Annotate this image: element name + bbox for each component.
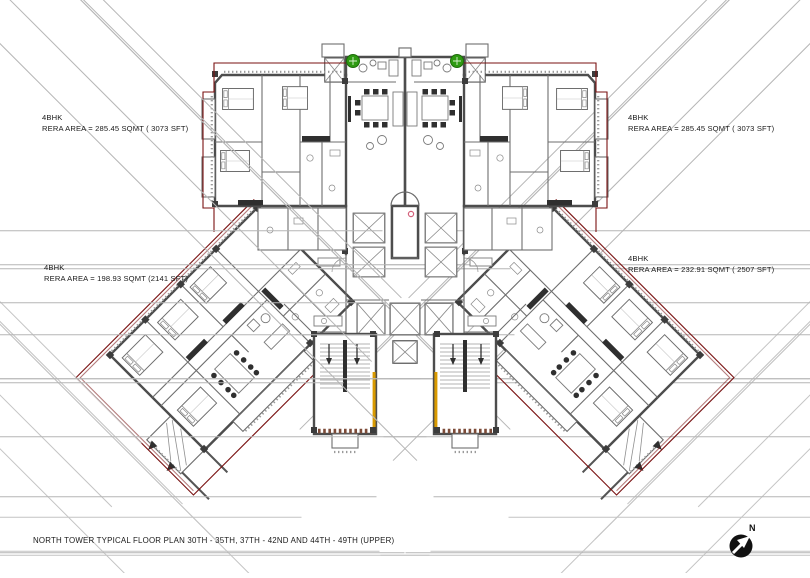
floor-plan-drawing: N (0, 0, 810, 573)
unit-area-text: RERA AREA = 232.91 SQMT ( 2507 SFT) (628, 264, 774, 275)
unit-label-mid-left: 4BHK RERA AREA = 198.93 SQMT (2141 SFT) (44, 262, 188, 284)
unit-area-text: RERA AREA = 198.93 SQMT (2141 SFT) (44, 273, 188, 284)
unit-type-text: 4BHK (44, 262, 188, 273)
plan-title: NORTH TOWER TYPICAL FLOOR PLAN 30TH - 35… (33, 536, 394, 545)
unit-type-text: 4BHK (42, 112, 188, 123)
unit-area-text: RERA AREA = 285.45 SQMT ( 3073 SFT) (628, 123, 774, 134)
unit-area-text: RERA AREA = 285.45 SQMT ( 3073 SFT) (42, 123, 188, 134)
left-half-plan (75, 0, 810, 573)
unit-label-top-right: 4BHK RERA AREA = 285.45 SQMT ( 3073 SFT) (628, 112, 774, 134)
mirrored-right-half-plan (0, 0, 735, 573)
plant-icon (347, 55, 360, 68)
unit-label-top-left: 4BHK RERA AREA = 285.45 SQMT ( 3073 SFT) (42, 112, 188, 134)
unit-label-mid-right: 4BHK RERA AREA = 232.91 SQMT ( 2507 SFT) (628, 253, 774, 275)
floor-plan-page: N 4BHK RERA AREA = 285.45 SQMT ( 3073 SF… (0, 0, 810, 573)
left-wing-unit (75, 0, 810, 573)
compass-north-letter: N (749, 523, 756, 533)
unit-type-text: 4BHK (628, 253, 774, 264)
unit-type-text: 4BHK (628, 112, 774, 123)
